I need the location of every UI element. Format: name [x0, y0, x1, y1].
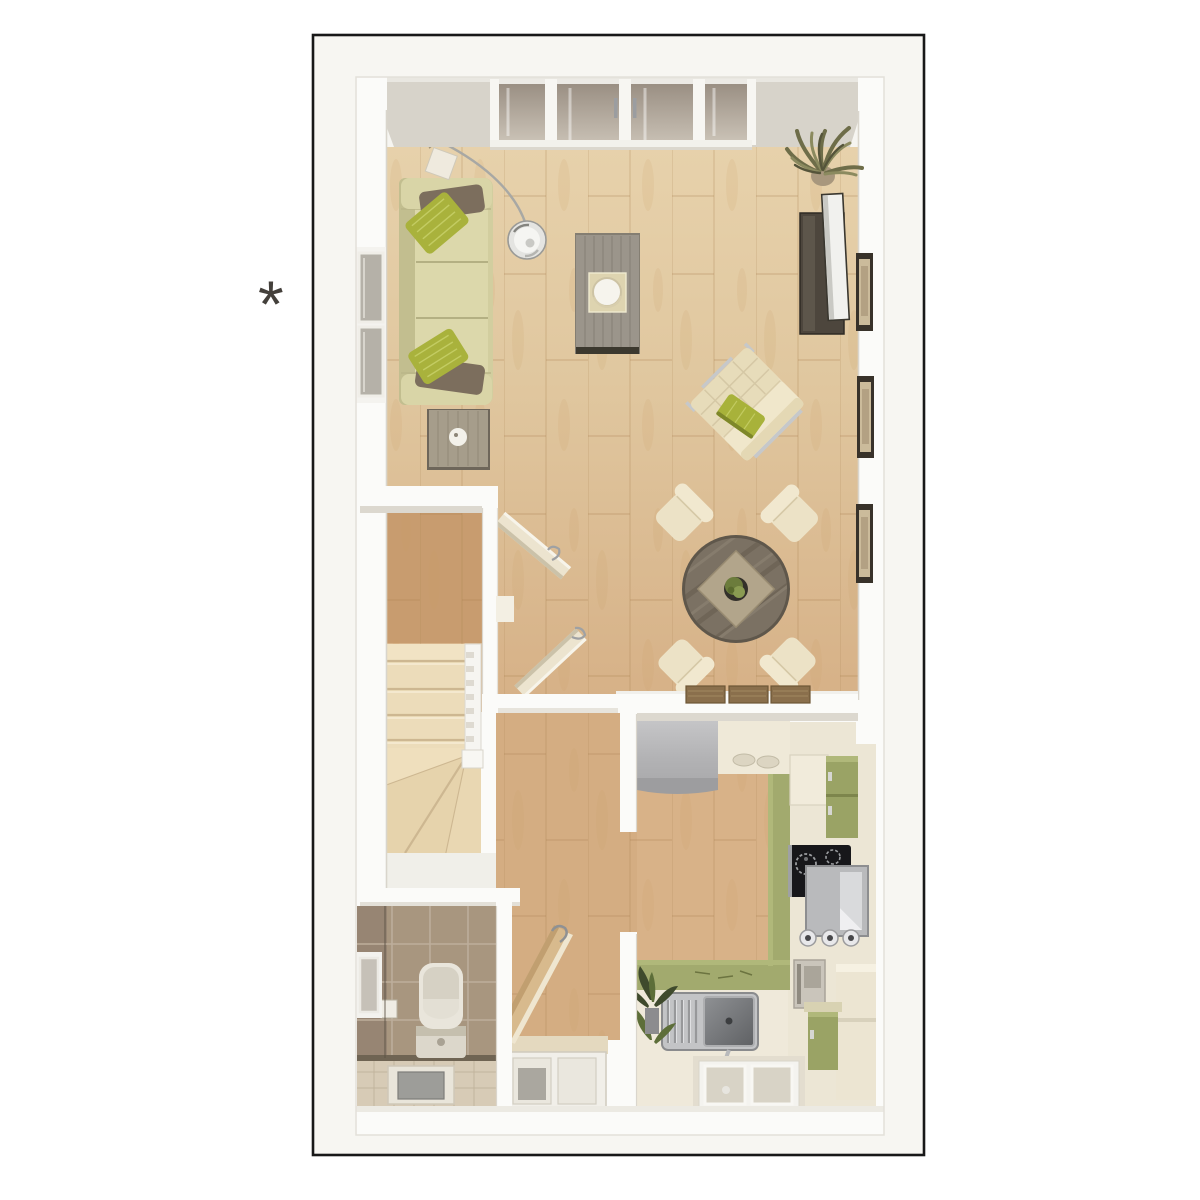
svg-text:*: * [258, 267, 284, 341]
